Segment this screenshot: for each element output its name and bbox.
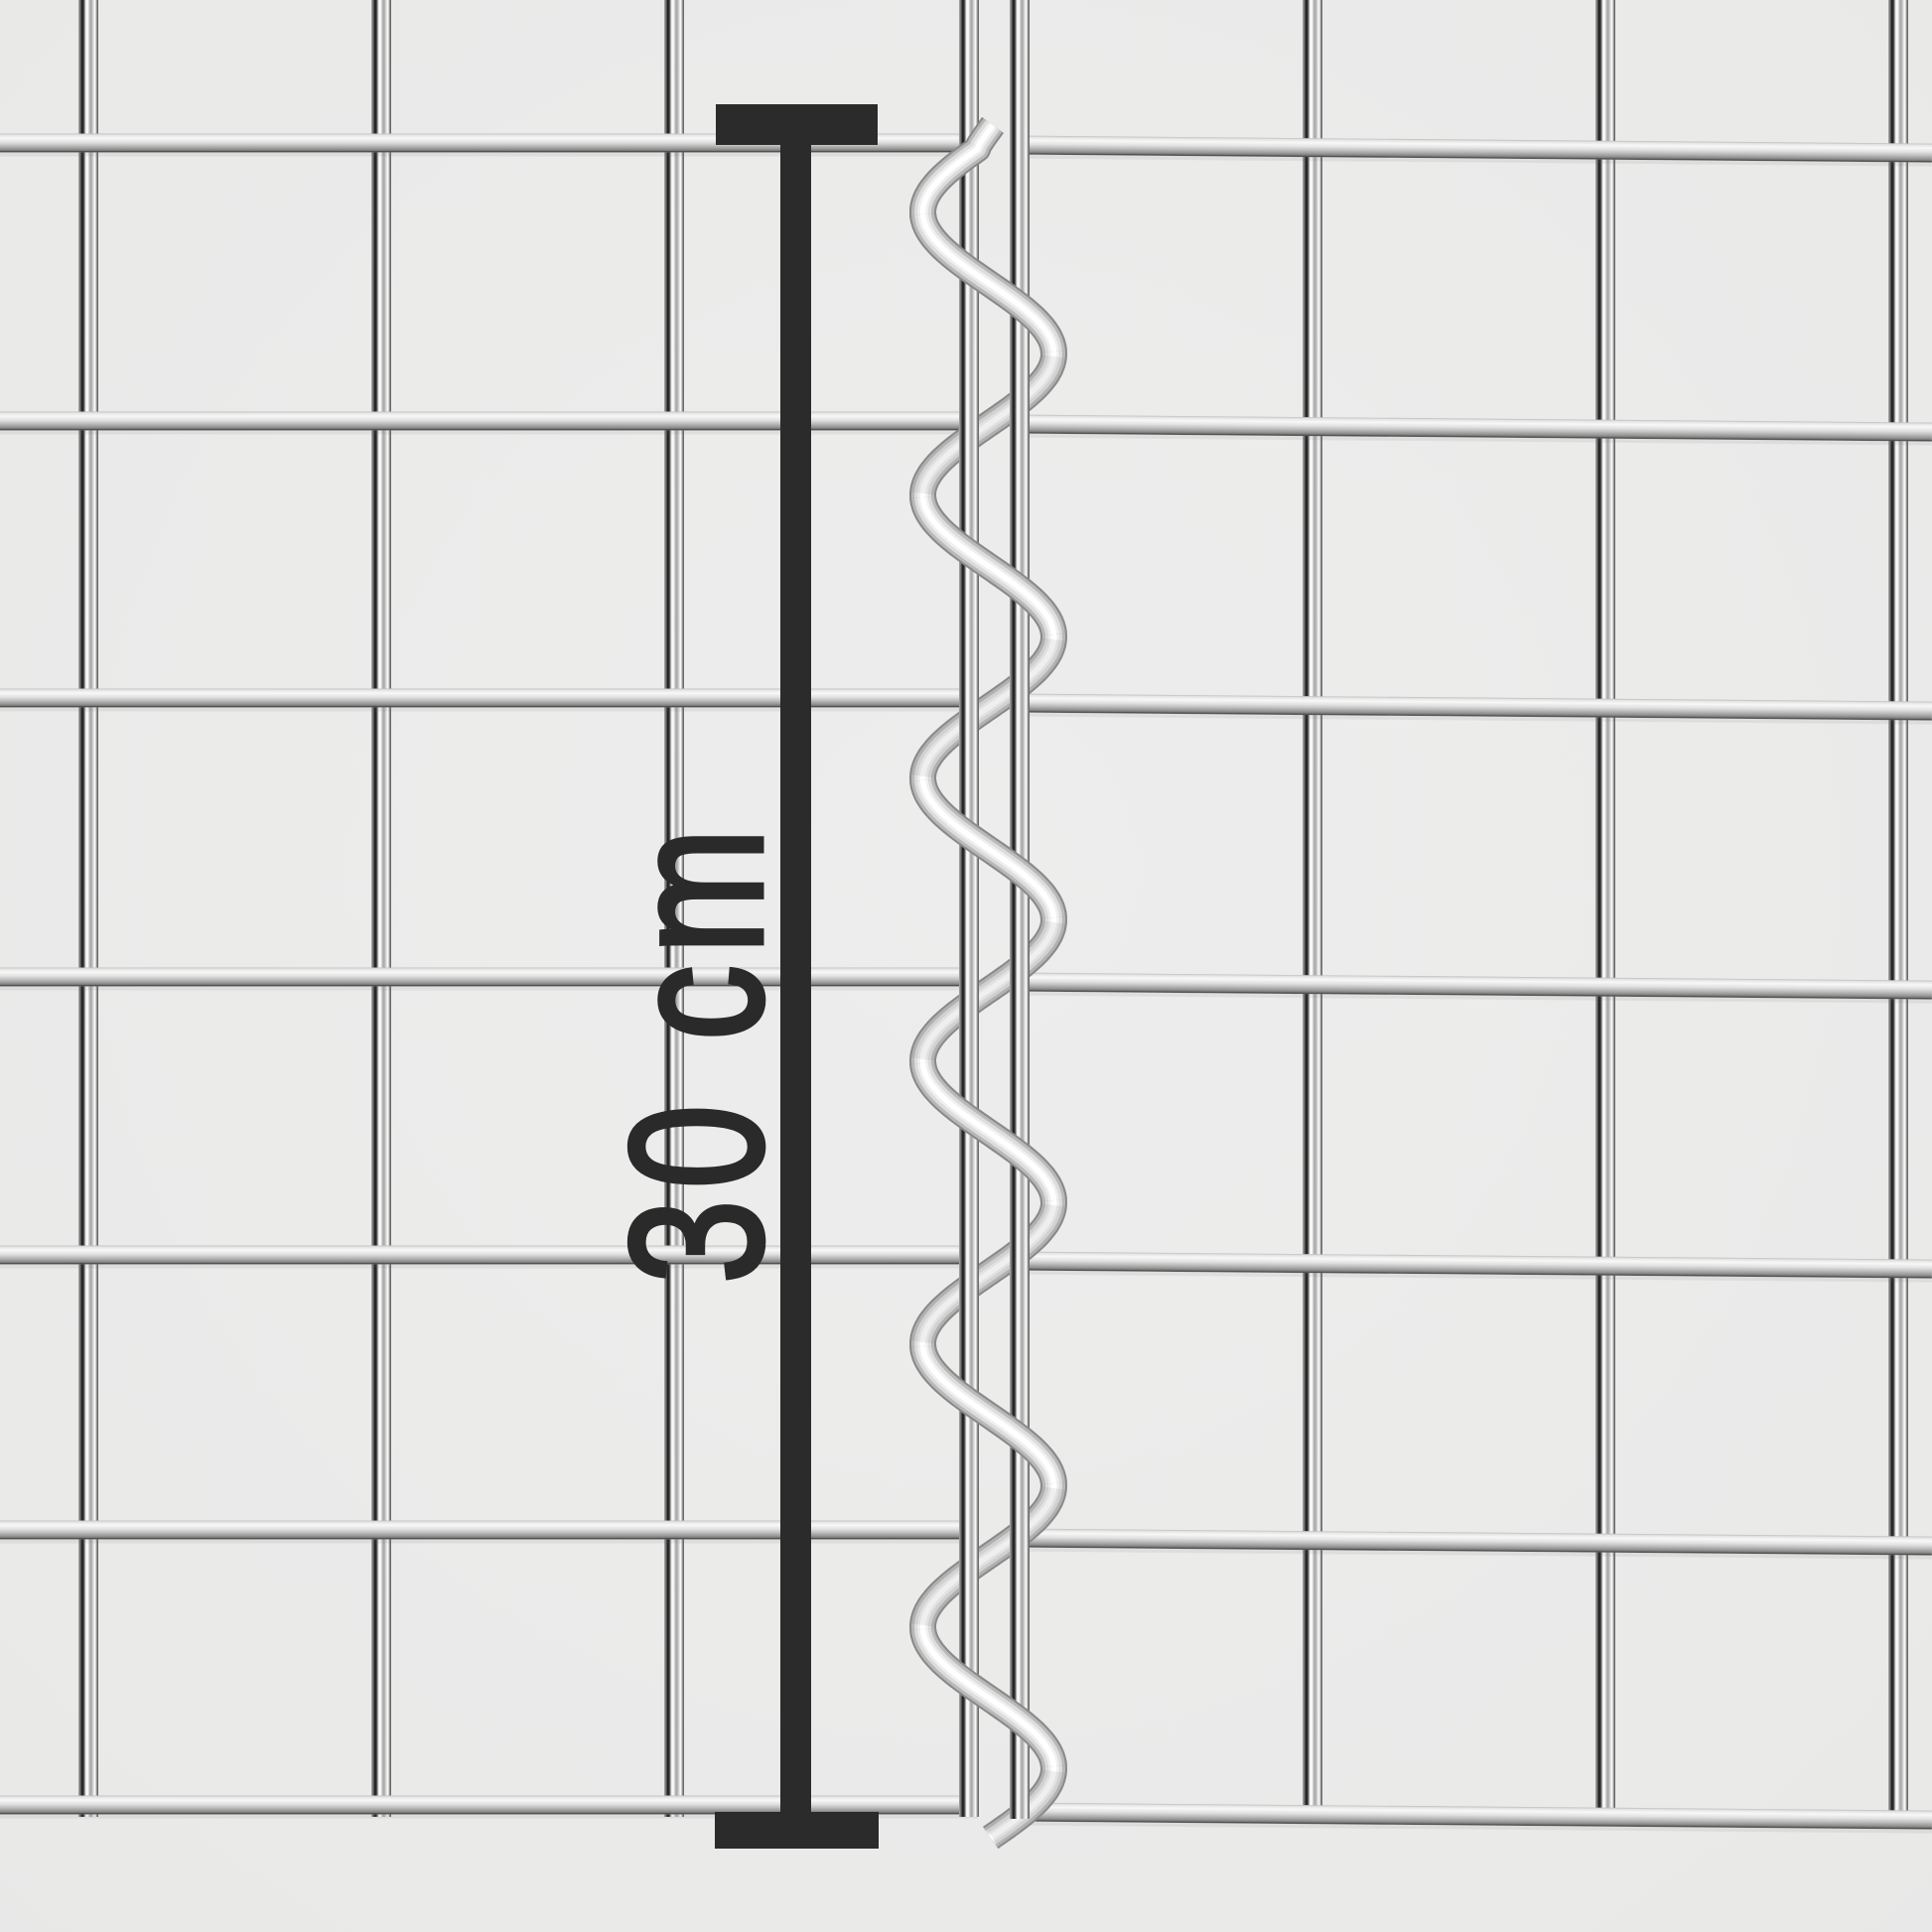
svg-text:30 cm: 30 cm bbox=[592, 817, 802, 1284]
